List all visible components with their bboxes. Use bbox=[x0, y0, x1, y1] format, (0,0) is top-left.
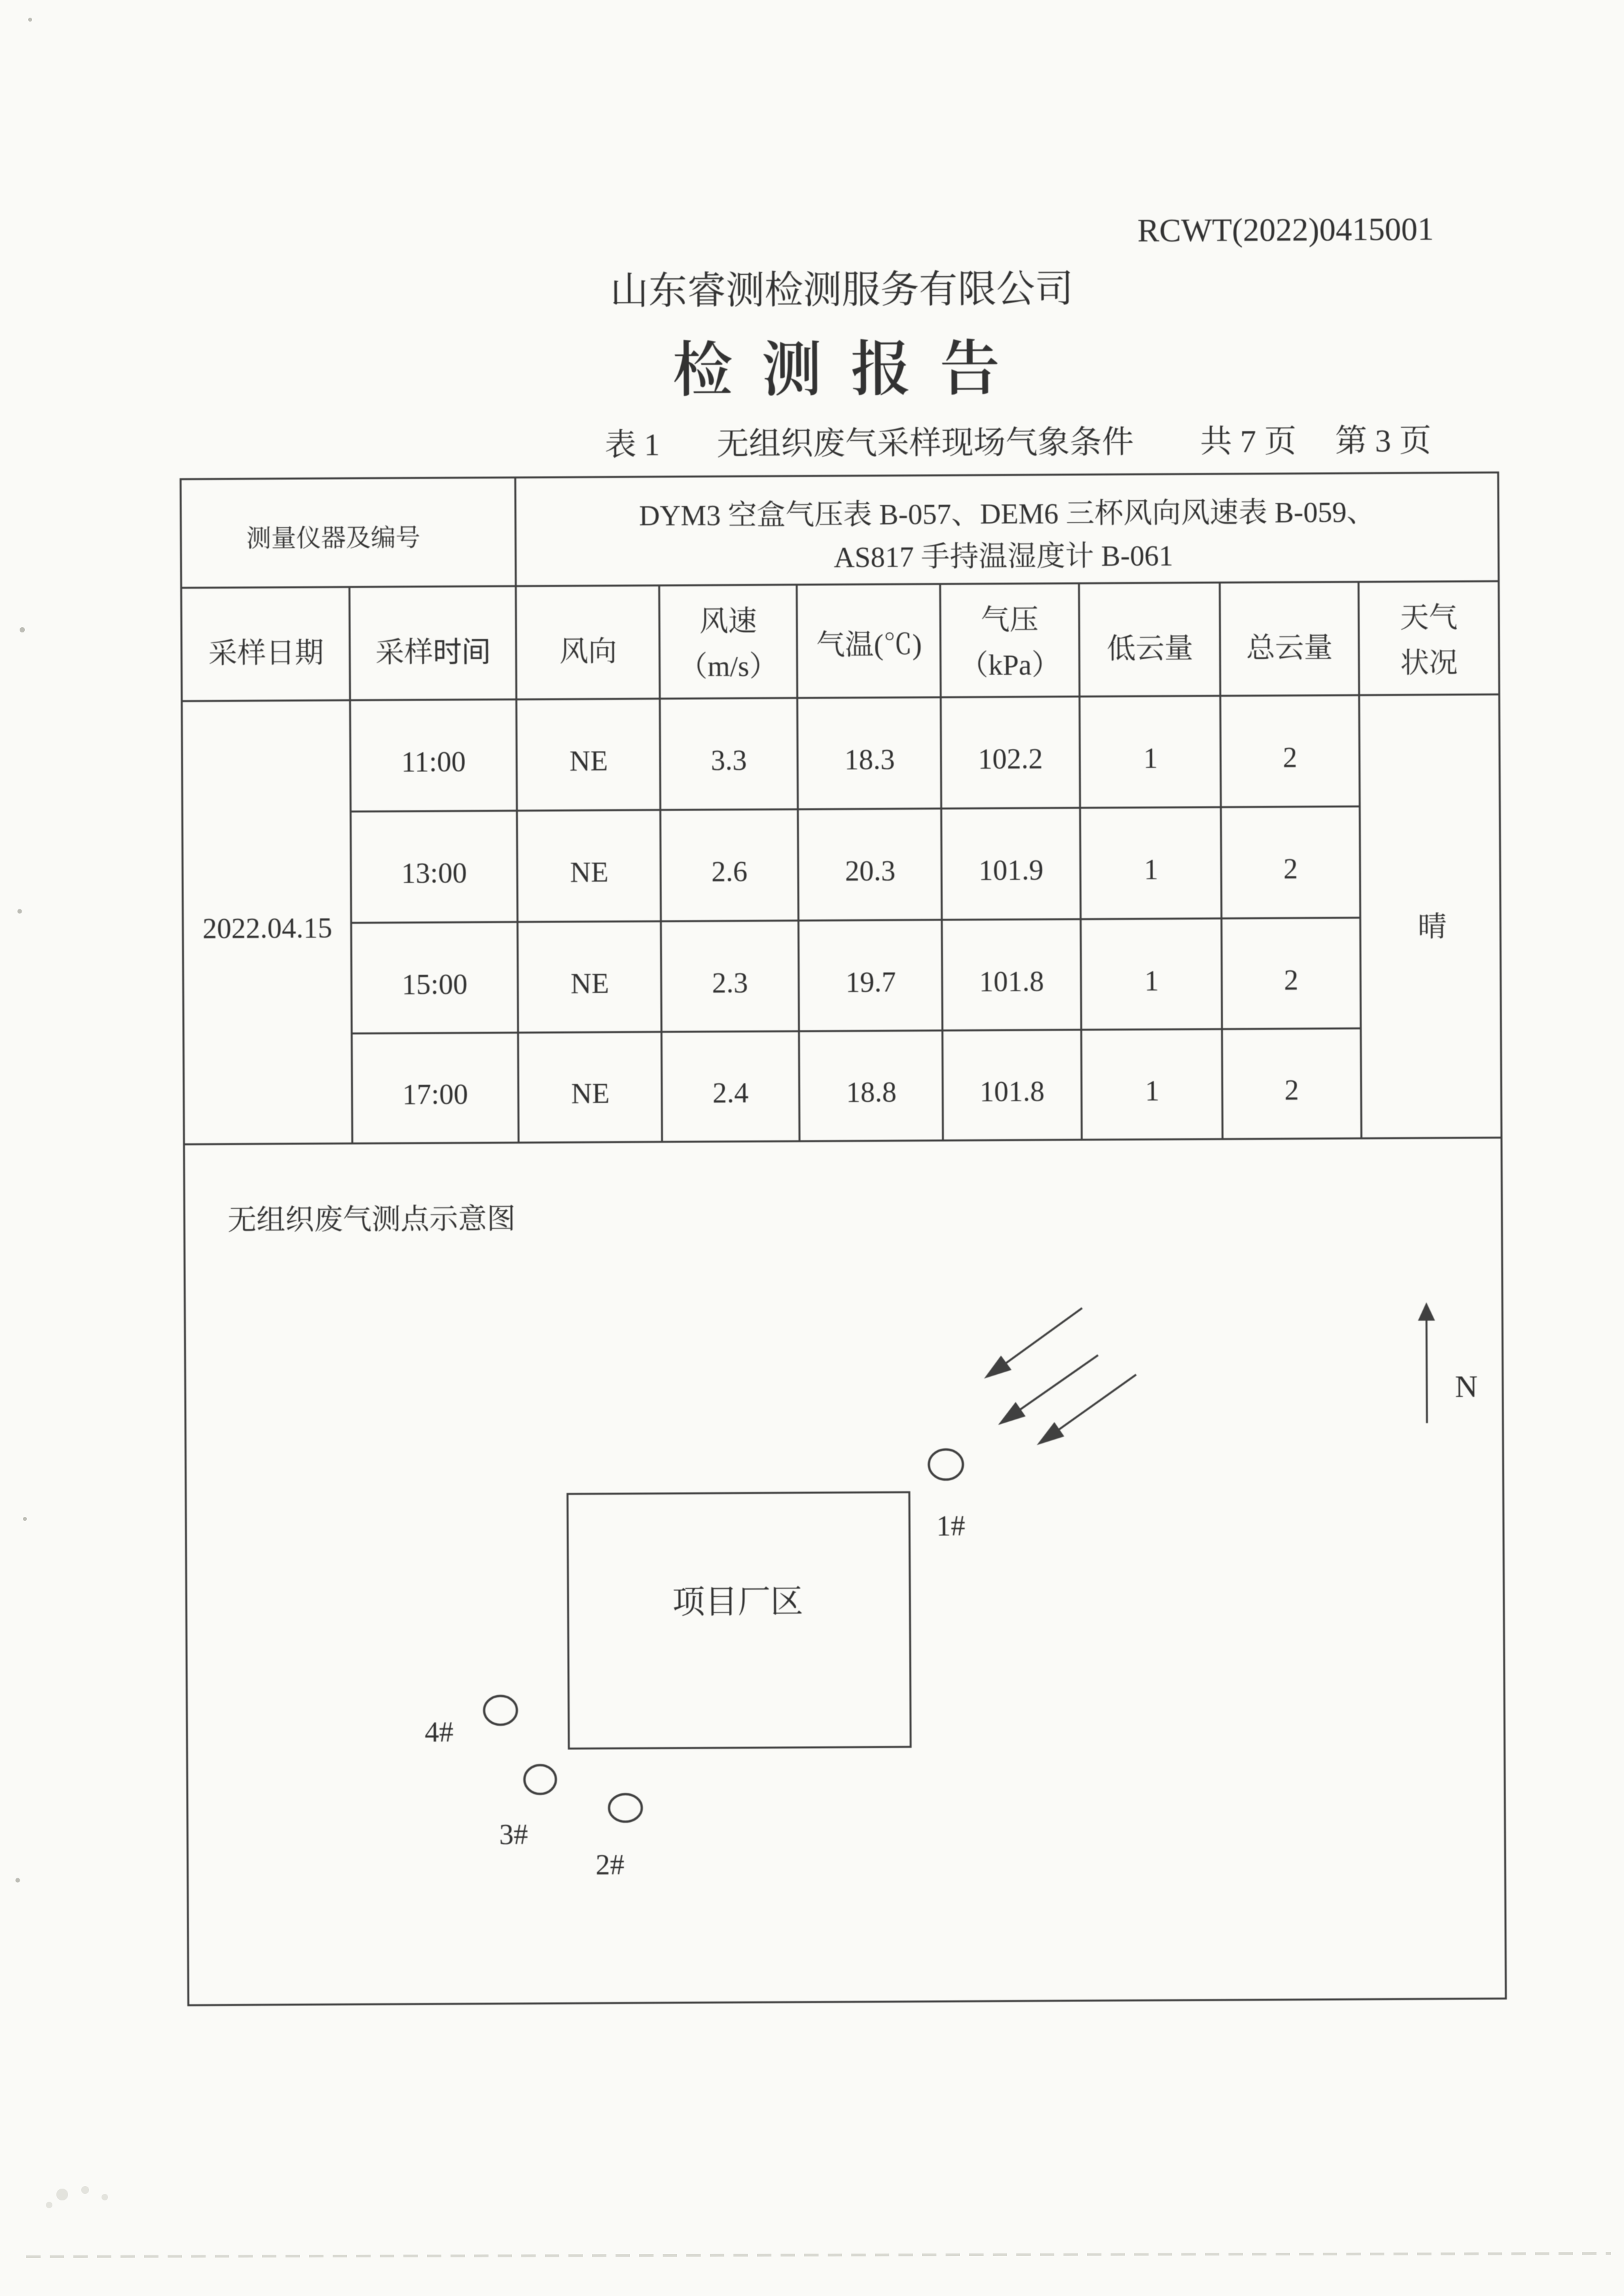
svg-text:2#: 2# bbox=[595, 1848, 624, 1880]
svg-text:11:00: 11:00 bbox=[401, 746, 466, 778]
svg-text:低云量: 低云量 bbox=[1107, 625, 1193, 667]
svg-text:无组织废气测点示意图: 无组织废气测点示意图 bbox=[227, 1195, 515, 1238]
svg-text:4#: 4# bbox=[424, 1716, 453, 1748]
svg-text:采样时间: 采样时间 bbox=[375, 628, 490, 670]
svg-text:RCWT(2022)0415001: RCWT(2022)0415001 bbox=[1137, 210, 1434, 248]
svg-text:第 3 页: 第 3 页 bbox=[1335, 415, 1431, 462]
svg-text:（m/s）: （m/s） bbox=[678, 642, 778, 685]
svg-text:3#: 3# bbox=[499, 1818, 528, 1850]
svg-text:表 1: 表 1 bbox=[604, 419, 659, 464]
svg-text:NE: NE bbox=[571, 1078, 610, 1110]
svg-text:2.4: 2.4 bbox=[712, 1076, 748, 1108]
svg-text:15:00: 15:00 bbox=[401, 968, 467, 1001]
svg-text:气温(℃): 气温(℃) bbox=[816, 621, 922, 663]
svg-text:DYM3 空盒气压表 B-057、DEM6 三杯风向风速表: DYM3 空盒气压表 B-057、DEM6 三杯风向风速表 B-059、 bbox=[639, 488, 1376, 534]
svg-text:17:00: 17:00 bbox=[402, 1078, 468, 1111]
svg-text:102.2: 102.2 bbox=[978, 742, 1043, 775]
svg-text:天气: 天气 bbox=[1400, 594, 1458, 636]
svg-text:气压: 气压 bbox=[981, 596, 1039, 638]
svg-text:18.3: 18.3 bbox=[844, 743, 895, 775]
svg-text:风速: 风速 bbox=[699, 597, 757, 639]
svg-text:无组织废气采样现场气象条件: 无组织废气采样现场气象条件 bbox=[716, 416, 1134, 464]
svg-text:2: 2 bbox=[1284, 964, 1299, 996]
svg-text:2.3: 2.3 bbox=[712, 966, 748, 998]
svg-text:项目厂区: 项目厂区 bbox=[672, 1575, 803, 1623]
svg-text:2: 2 bbox=[1283, 852, 1298, 884]
svg-text:检测报告: 检测报告 bbox=[673, 320, 1029, 409]
svg-text:NE: NE bbox=[570, 856, 608, 888]
svg-text:3.3: 3.3 bbox=[710, 744, 747, 776]
svg-text:2022.04.15: 2022.04.15 bbox=[202, 912, 332, 945]
svg-text:风向: 风向 bbox=[559, 627, 617, 669]
svg-text:1#: 1# bbox=[936, 1510, 965, 1542]
svg-text:2: 2 bbox=[1284, 1074, 1299, 1106]
svg-text:NE: NE bbox=[570, 968, 609, 1000]
svg-text:101.9: 101.9 bbox=[978, 854, 1043, 886]
svg-text:101.8: 101.8 bbox=[980, 1075, 1044, 1108]
svg-text:1: 1 bbox=[1143, 742, 1158, 774]
svg-text:1: 1 bbox=[1145, 964, 1159, 996]
svg-text:20.3: 20.3 bbox=[845, 854, 895, 886]
svg-text:1: 1 bbox=[1144, 853, 1158, 885]
svg-text:NE: NE bbox=[570, 745, 608, 777]
svg-text:总云量: 总云量 bbox=[1246, 624, 1333, 666]
svg-text:山东睿测检测服务有限公司: 山东睿测检测服务有限公司 bbox=[610, 257, 1073, 316]
svg-text:（kPa）: （kPa） bbox=[959, 641, 1060, 683]
svg-text:状况: 状况 bbox=[1400, 639, 1458, 681]
svg-text:2: 2 bbox=[1283, 741, 1297, 773]
svg-text:13:00: 13:00 bbox=[401, 857, 467, 890]
svg-text:101.8: 101.8 bbox=[979, 965, 1044, 998]
svg-text:18.8: 18.8 bbox=[846, 1076, 896, 1108]
svg-text:AS817 手持温湿度计 B-061: AS817 手持温湿度计 B-061 bbox=[834, 532, 1173, 575]
svg-text:19.7: 19.7 bbox=[845, 966, 896, 998]
svg-text:2.6: 2.6 bbox=[711, 855, 747, 887]
svg-text:采样日期: 采样日期 bbox=[208, 629, 323, 672]
svg-text:晴: 晴 bbox=[1418, 903, 1447, 945]
svg-text:1: 1 bbox=[1145, 1074, 1159, 1106]
svg-text:N: N bbox=[1455, 1370, 1478, 1404]
svg-text:测量仪器及编号: 测量仪器及编号 bbox=[246, 517, 420, 554]
svg-text:共 7 页: 共 7 页 bbox=[1200, 416, 1296, 462]
